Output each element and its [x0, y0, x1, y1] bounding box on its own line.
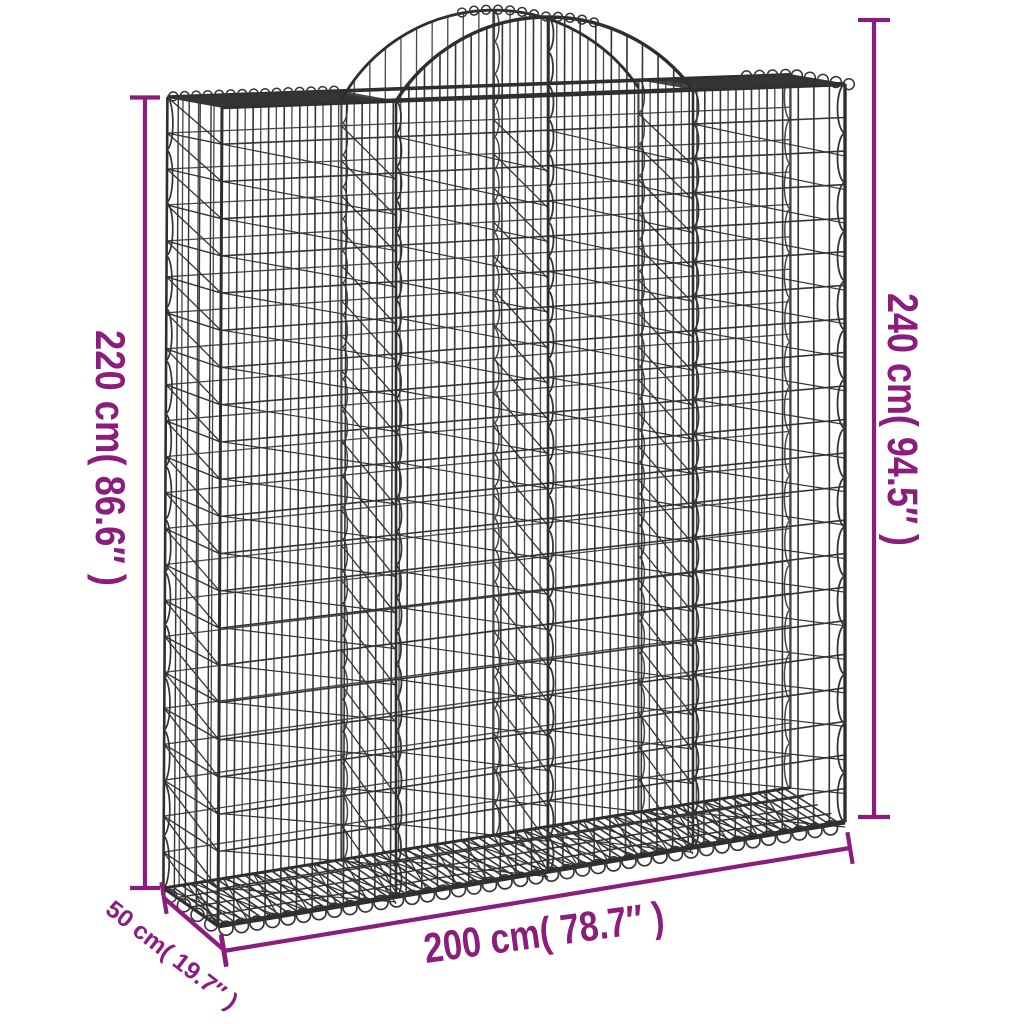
svg-text:240 cm( 94.5″ ): 240 cm( 94.5″ ) — [878, 293, 926, 546]
svg-text:200 cm( 78.7″ ): 200 cm( 78.7″ ) — [421, 893, 667, 972]
svg-text:220 cm( 86.6″ ): 220 cm( 86.6″ ) — [87, 330, 134, 586]
